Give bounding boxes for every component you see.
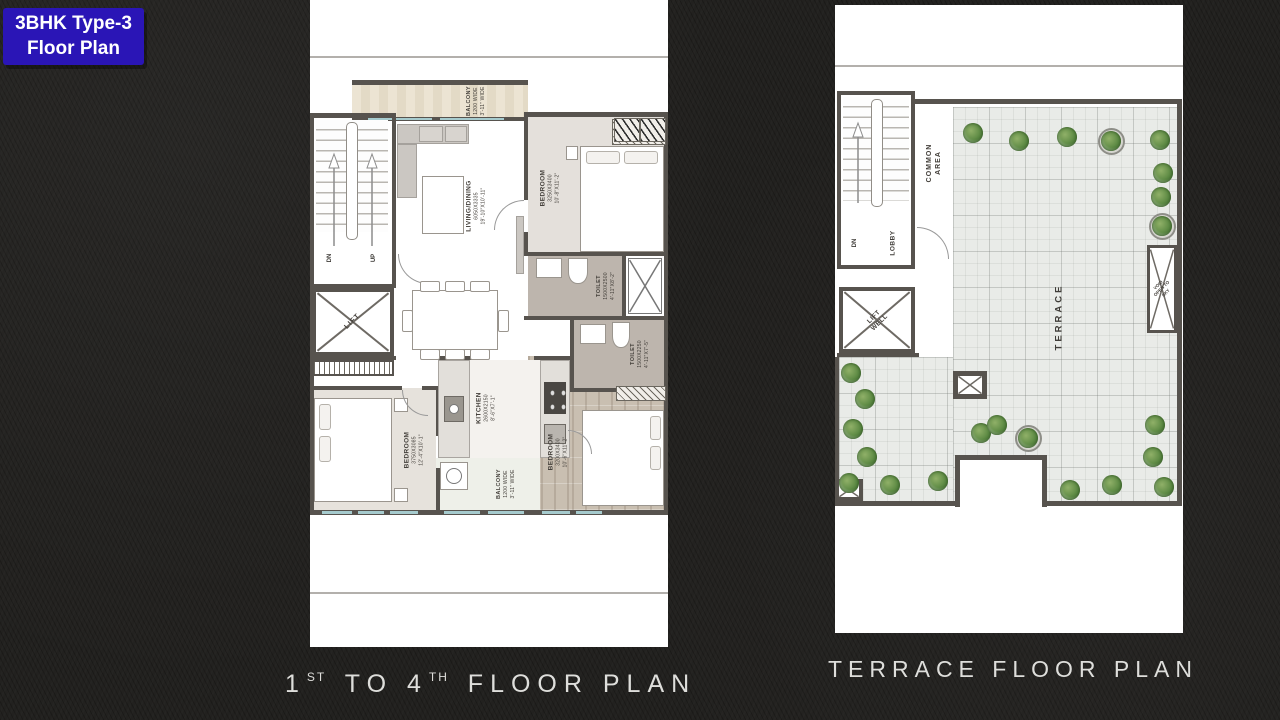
- chair: [470, 349, 490, 360]
- chair: [470, 281, 490, 292]
- wc: [612, 322, 630, 348]
- chair: [420, 281, 440, 292]
- stair-dn-label: DN: [327, 254, 333, 263]
- window-glass: [322, 511, 352, 514]
- terrace-dn-label: DN: [852, 239, 858, 248]
- balcony-top-label: BALCONY 1200 WIDE 3'-11" WIDE: [466, 86, 486, 116]
- divider: [310, 592, 668, 594]
- window-shade-hatch: [614, 118, 640, 142]
- chair: [498, 310, 509, 332]
- plant-icon: [1145, 415, 1165, 435]
- wall-segment: [837, 353, 919, 357]
- plant-icon: [839, 473, 859, 493]
- pillow: [650, 446, 661, 470]
- plant-icon: [1101, 131, 1121, 151]
- window-glass: [576, 511, 602, 514]
- bedroom-tr-label: BEDROOM 3250X3400 10'-8"X11'-2": [539, 170, 560, 207]
- toilet2-label: TOILET 1500X2250 4'-11"X7'-5": [630, 340, 650, 368]
- right-plan-caption: TERRACE FLOOR PLAN: [828, 656, 1168, 683]
- door-arc: [398, 254, 428, 284]
- coffee-table: [422, 176, 464, 234]
- side-table: [394, 488, 408, 502]
- plant-icon: [855, 389, 875, 409]
- planter-icon: [1149, 213, 1176, 240]
- planter-icon: [1015, 425, 1042, 452]
- side-table: [566, 146, 578, 160]
- wall-segment: [310, 386, 402, 390]
- wall-segment: [524, 112, 668, 117]
- wall-segment: [524, 252, 668, 256]
- left-plan-caption: 1ST TO 4TH FLOOR PLAN: [285, 670, 685, 699]
- badge-line-1: 3BHK Type-3: [3, 12, 144, 37]
- floor-plan-panel: DN UP LIFT LIVING/DINING 6050X3335 19'-1…: [310, 0, 668, 647]
- wall-segment: [392, 113, 396, 288]
- plant-icon: [963, 123, 983, 143]
- door-arc: [494, 200, 524, 230]
- sofa-cushion: [419, 126, 443, 142]
- terrace-label: TERRACE: [1054, 284, 1065, 351]
- toilet1-label: TOILET 1500X2500 4'-11"X8'-2": [596, 272, 616, 300]
- chair: [402, 310, 413, 332]
- washbasin: [580, 324, 606, 344]
- window-shade-hatch: [640, 118, 666, 142]
- dining-table: [412, 290, 498, 350]
- pillow: [319, 404, 331, 430]
- sink-bowl: [449, 404, 459, 414]
- stair-arrows-icon: [316, 126, 388, 256]
- chair: [445, 281, 465, 292]
- bedroom-br-label: BEDROOM 3200X3400 10'-6"X11'-2": [547, 434, 568, 471]
- window-glass: [390, 511, 418, 514]
- chair: [445, 349, 465, 360]
- vent-cross-icon: [958, 376, 982, 394]
- lobby-label: LOBBY: [890, 230, 897, 255]
- stair-up-label: UP: [371, 254, 377, 262]
- wall-segment: [664, 112, 668, 515]
- divider: [310, 56, 668, 58]
- plant-icon: [1150, 130, 1170, 150]
- pillow: [586, 151, 620, 164]
- sofa: [397, 144, 417, 198]
- caption-ordinal: TH: [429, 670, 449, 684]
- chair: [420, 349, 440, 360]
- plant-icon: [1018, 428, 1038, 448]
- duct-shaft: [628, 258, 662, 314]
- wall-segment: [622, 252, 626, 320]
- plant-icon: [1153, 163, 1173, 183]
- plant-icon: [843, 419, 863, 439]
- window-glass: [488, 511, 524, 514]
- caption-number: 1: [285, 670, 306, 698]
- wall-segment: [915, 99, 1181, 104]
- plant-icon: [987, 415, 1007, 435]
- hob: [544, 382, 566, 414]
- window-glass: [542, 511, 570, 514]
- pillow: [650, 416, 661, 440]
- balcony-b-label: BALCONY 1200 WIDE 3'-11" WIDE: [496, 469, 516, 499]
- wall-segment: [352, 80, 528, 85]
- terrace-plan-panel: DN LOBBY COMMON AREA LIFT WELL VOID OPEN…: [835, 5, 1183, 633]
- plant-icon: [880, 475, 900, 495]
- living-dining-label: LIVING/DINING 6050X3335 19'-10"X10'-11": [465, 180, 486, 231]
- window-glass: [444, 511, 480, 514]
- badge-line-2: Floor Plan: [3, 37, 144, 62]
- wc: [568, 258, 588, 284]
- plant-icon: [1152, 216, 1172, 236]
- plant-icon: [1151, 187, 1171, 207]
- washing-machine-drum: [446, 468, 462, 484]
- common-area-label: COMMON AREA: [925, 144, 943, 183]
- caption-text: FLOOR PLAN: [454, 670, 696, 698]
- plant-icon: [841, 363, 861, 383]
- vent-grill: [312, 360, 394, 376]
- pillow: [319, 436, 331, 462]
- terrace-tiles: [953, 107, 1177, 501]
- plant-icon: [1143, 447, 1163, 467]
- divider: [835, 65, 1183, 67]
- window-glass: [358, 511, 384, 514]
- duct-cross-icon: [629, 259, 661, 313]
- wall-segment: [524, 316, 668, 320]
- washbasin: [536, 258, 562, 278]
- plant-icon: [1060, 480, 1080, 500]
- plant-icon: [857, 447, 877, 467]
- kitchen-label: KITCHEN 2600X2150 8'-6"X7'-1": [475, 392, 496, 424]
- plant-icon: [1102, 475, 1122, 495]
- window-glass: [440, 118, 504, 120]
- planter-icon: [1098, 128, 1125, 155]
- sofa-cushion: [445, 126, 467, 142]
- plant-icon: [928, 471, 948, 491]
- terrace-notch: [955, 455, 1047, 507]
- stair-arrow-icon: [843, 103, 873, 213]
- wardrobe-hatch: [616, 386, 666, 401]
- plant-icon: [1057, 127, 1077, 147]
- caption-text: TO 4: [331, 670, 428, 698]
- vent-box: [953, 371, 987, 399]
- wall-segment: [570, 316, 574, 392]
- bedroom-bl-label: BEDROOM 3750X3085 12'-4"X10'-1": [403, 432, 424, 469]
- stair-lobby-block: [837, 91, 915, 269]
- caption-ordinal: ST: [307, 670, 326, 684]
- pillow: [624, 151, 658, 164]
- wall-segment: [524, 112, 528, 200]
- wall-segment: [310, 113, 396, 118]
- plant-icon: [1009, 131, 1029, 151]
- wall-segment: [1177, 99, 1182, 501]
- plant-icon: [1154, 477, 1174, 497]
- plan-type-badge: 3BHK Type-3 Floor Plan: [3, 8, 144, 65]
- door-arc: [917, 227, 949, 259]
